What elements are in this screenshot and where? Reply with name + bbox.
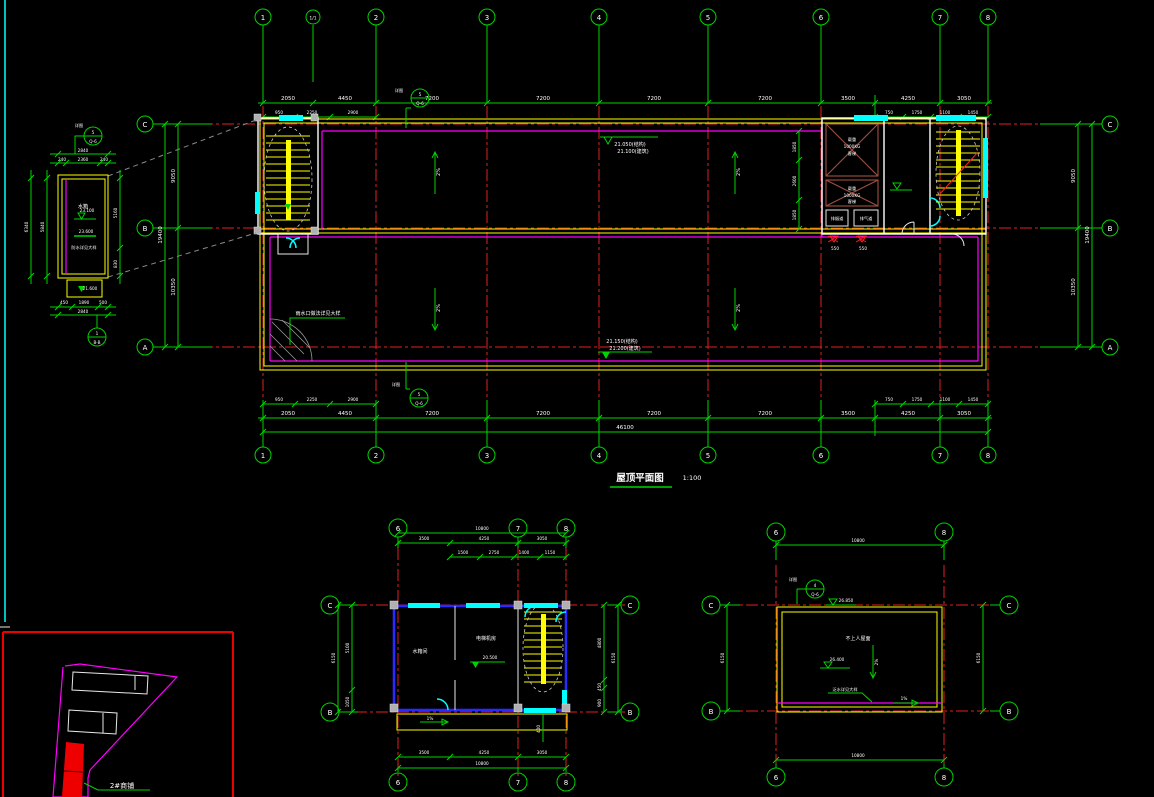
slope-label: 2% — [436, 168, 442, 176]
dim-text: 950 — [275, 110, 283, 115]
grid-bubble-label: C — [709, 602, 714, 610]
key-plan-frame — [3, 632, 233, 797]
dim-text: 830 — [113, 260, 118, 268]
door-swing — [286, 238, 300, 248]
grid-bubble-label: A — [143, 344, 148, 352]
grid-bubbles-bottom: 1 2 3 4 5 6 7 8 — [255, 447, 996, 463]
parapet-outline — [260, 119, 986, 370]
plan-scale: 1:100 — [683, 474, 702, 482]
elevator-x-1 — [826, 124, 878, 176]
elevation-text: 21.150(结构) — [606, 338, 637, 345]
column — [514, 601, 522, 609]
lobby-elevation-marker — [890, 183, 912, 190]
door-swing — [952, 234, 964, 246]
column — [311, 227, 318, 234]
dim-text: 750 — [885, 110, 893, 115]
column — [390, 601, 398, 609]
dim-text: 1850 — [792, 209, 797, 220]
grid-bubble-label: 5 — [706, 452, 710, 460]
grid-axis-vertical-lines — [263, 85, 988, 445]
plan-title: 屋顶平面图 — [616, 473, 664, 484]
dim-text: 9050 — [171, 169, 177, 183]
door-swings — [437, 606, 566, 710]
dim-text: 3050 — [957, 96, 971, 102]
callout-sheet: Q-6 — [811, 592, 819, 597]
elevator-label: 载重 — [848, 136, 856, 143]
dim-text: 2050 — [281, 96, 295, 102]
dim-text: 240 — [100, 157, 108, 162]
callout-sheet: B-B — [93, 340, 100, 345]
callout-label: 详图 — [395, 87, 403, 94]
dim-text: 4250 — [479, 750, 490, 755]
window — [255, 192, 260, 214]
parapet-mid-line — [260, 229, 986, 233]
dim-ticks — [335, 530, 621, 771]
dim-total-text: 46100 — [616, 425, 634, 431]
callout-leader — [797, 589, 806, 604]
dim-text: 1450 — [968, 397, 979, 402]
dim-text: 950 — [275, 397, 283, 402]
dim-text: 2840 — [78, 148, 89, 153]
grid-bubble-label: 3 — [485, 452, 489, 460]
grid-bubble-stems-top — [263, 25, 988, 103]
grid-bubble-label: 5 — [706, 14, 710, 22]
dim-text: 4250 — [901, 96, 915, 102]
dim-text: 1850 — [792, 141, 797, 152]
dim-text: 9050 — [1071, 169, 1077, 183]
grid-bubble-label: 8 — [986, 14, 990, 22]
grid-bubble-label: A — [1108, 344, 1113, 352]
dim-text: 400 — [536, 725, 541, 733]
elevation-text: 21.050(结构) — [614, 141, 645, 148]
window — [279, 115, 303, 121]
elevation-marker — [820, 662, 850, 668]
grid-bubble-label: B — [328, 709, 333, 717]
grid-bubble-label: 7 — [516, 525, 520, 533]
grid-bubble-label: C — [628, 602, 633, 610]
grid-axes — [725, 605, 1000, 711]
callout-number: 5 — [92, 130, 95, 135]
elevator-label: 载重 — [848, 185, 856, 192]
key-plan-label: 2#商铺 — [110, 781, 134, 790]
callout-sheet: Q-6 — [416, 101, 424, 106]
dim-text: 5160 — [113, 207, 118, 218]
column — [311, 114, 318, 121]
dim-text: 7200 — [425, 96, 439, 102]
tank-detail-plan: 21.600 水箱 23.100 23.600 防水详见大样 2840 240 … — [24, 120, 256, 346]
machine-room-plan: 6 7 8 6 7 8 C B C B 10800 3500 4250 3050… — [321, 519, 639, 791]
callout-number: 5 — [419, 92, 422, 97]
slope-label: 2% — [436, 304, 442, 312]
bubble-stems — [720, 541, 1000, 768]
roof-label: 不上人屋面 — [845, 635, 870, 642]
dim-text: 3500 — [841, 411, 855, 417]
awning-slope-arrow — [420, 719, 448, 725]
elevation-text: 23.600 — [79, 229, 94, 234]
current-building-highlight — [62, 742, 84, 797]
slope-label: 1% — [901, 696, 908, 701]
dim-text: 1750 — [912, 110, 923, 115]
dim-text: 1750 — [912, 397, 923, 402]
callout-sheet: Q-6 — [415, 401, 423, 406]
dim-text: 1150 — [545, 550, 556, 555]
window — [466, 603, 500, 608]
dim-text: 4450 — [338, 411, 352, 417]
dim-text: 3050 — [537, 750, 548, 755]
dim-text: 3500 — [419, 750, 430, 755]
dim-text: 2900 — [348, 110, 359, 115]
dim-text: 3500 — [419, 536, 430, 541]
room-label: 电梯机房 — [476, 635, 496, 642]
dim-text: 1400 — [519, 550, 530, 555]
dim-text: 4250 — [479, 536, 490, 541]
dim-text: 1100 — [940, 397, 951, 402]
dim-text: 3500 — [841, 96, 855, 102]
tank-walls-inner — [62, 179, 105, 274]
dim-text: 1100 — [940, 110, 951, 115]
grid-bubble-label: 6 — [396, 779, 401, 787]
grid-bubble-label: 8 — [564, 779, 568, 787]
grid-bubble-label: B — [1108, 225, 1113, 233]
dim-text: 500 — [99, 300, 107, 305]
grid-bubble-label: 8 — [942, 529, 946, 537]
flue-label: 排烟道 — [831, 215, 844, 222]
elevation-text: 21.200(建筑) — [609, 345, 640, 352]
grid-axes — [776, 565, 944, 768]
column — [562, 601, 570, 609]
drain-dim: 550 — [859, 246, 867, 251]
dim-text: 900 — [597, 699, 602, 707]
elevation-text: 26.850 — [839, 598, 854, 603]
bubble-stems — [339, 537, 621, 772]
elevation-text: 21.100(建筑) — [617, 148, 648, 155]
grid-bubble-label: B — [628, 709, 633, 717]
dim-text: 2900 — [348, 397, 359, 402]
dim-text: 2250 — [307, 397, 318, 402]
roof-detail-plan: 6 8 6 8 C B C B 10800 10800 6150 6150 4 … — [702, 523, 1018, 786]
elevation-marker — [74, 213, 96, 219]
grid-bubbles-top: 1 1/1 2 3 4 5 6 7 8 — [255, 9, 996, 25]
callout-number: 5 — [418, 392, 421, 397]
grid-bubble-label: C — [143, 121, 148, 129]
dim-text: 750 — [885, 397, 893, 402]
dim-text: 6150 — [720, 652, 725, 663]
elevator-label: 1000KG — [844, 144, 861, 149]
grid-bubble-label: 1 — [261, 14, 265, 22]
dim-ticks — [724, 542, 986, 763]
elevator-label: 1000KG — [844, 193, 861, 198]
drawing-sheet: 1 1/1 2 3 4 5 6 7 8 1 2 3 4 5 6 7 8 C B … — [0, 0, 1154, 797]
dim-text: 6340 — [24, 221, 29, 232]
dim-text: 7200 — [647, 411, 661, 417]
dim-text: 19400 — [1085, 226, 1091, 244]
dim-text: 240 — [58, 157, 66, 162]
dim-text: 3050 — [957, 411, 971, 417]
dim-text: 6150 — [331, 652, 336, 663]
grid-bubble-label: 8 — [942, 774, 946, 782]
callout-number: 1 — [96, 331, 99, 336]
dim-text: 19400 — [158, 226, 164, 244]
dim-lines — [338, 533, 618, 768]
dim-text: 2750 — [489, 550, 500, 555]
building-outline-2 — [68, 710, 117, 734]
core-inner-walls — [884, 118, 930, 234]
flue-label: 排气道 — [860, 215, 873, 222]
detail-dim-lines — [31, 154, 120, 315]
grid-bubble-label: 1/1 — [309, 16, 316, 22]
slope-label: 2% — [874, 659, 879, 666]
dim-text: 450 — [597, 683, 602, 691]
grid-bubble-label: 1 — [261, 452, 265, 460]
grid-bubble-label: 6 — [396, 525, 401, 533]
grid-bubble-label: B — [709, 708, 714, 716]
grid-bubble-label: 7 — [516, 779, 520, 787]
grid-bubble-label: C — [1108, 121, 1113, 129]
grid-bubble-label: 7 — [938, 452, 942, 460]
dim-text: 6150 — [976, 652, 981, 663]
dim-text: 5100 — [345, 642, 350, 653]
callout-label: 详图 — [75, 122, 83, 129]
grid-bubble-label: 4 — [597, 14, 602, 22]
callout-number: 4 — [814, 583, 817, 588]
elevation-text: 26.400 — [830, 657, 845, 662]
dim-text: 10800 — [851, 538, 865, 543]
elevator-label: 客梯 — [848, 150, 856, 157]
dim-text: 7200 — [647, 96, 661, 102]
grid-bubble-label: B — [143, 225, 148, 233]
window — [936, 115, 976, 121]
dim-text: 7200 — [758, 96, 772, 102]
grid-bubble-label: 6 — [819, 452, 824, 460]
window — [854, 115, 888, 121]
callout-sheet: Q-6 — [89, 139, 97, 144]
key-plan: 2#商铺 — [3, 632, 233, 797]
column — [390, 704, 398, 712]
main-roof-plan: 1 1/1 2 3 4 5 6 7 8 1 2 3 4 5 6 7 8 C B … — [137, 9, 1118, 487]
grid-axes — [398, 548, 566, 778]
dim-text: 4800 — [597, 637, 602, 648]
grid-bubble-label: 4 — [597, 452, 602, 460]
dim-text: 5840 — [40, 221, 45, 232]
grid-bubble-label: 6 — [819, 14, 824, 22]
callout-leader — [406, 108, 411, 128]
dim-text: 1050 — [345, 696, 350, 707]
dim-text: 450 — [60, 300, 68, 305]
slope-label: 2% — [736, 168, 742, 176]
grid-bubble-label: 6 — [774, 529, 779, 537]
grid-bubble-label: 2 — [374, 452, 378, 460]
dim-text: 7200 — [536, 96, 550, 102]
note-text: 泛水详见大样 — [832, 686, 857, 693]
dim-text: 10800 — [475, 761, 489, 766]
grid-bubble-label: C — [1007, 602, 1012, 610]
window — [524, 708, 556, 713]
elevation-text: 23.100 — [80, 208, 95, 213]
drain-dim: 550 — [831, 246, 839, 251]
window — [408, 603, 440, 608]
zoom-leader-lines — [108, 120, 256, 277]
grid-bubble-label: 6 — [774, 774, 779, 782]
elevator-label: 客梯 — [848, 198, 856, 205]
dim-text: 10350 — [1071, 278, 1077, 296]
callout-leader — [85, 315, 97, 328]
dim-text: 10800 — [851, 753, 865, 758]
dim-text: 10350 — [171, 278, 177, 296]
elevation-triangle — [472, 662, 479, 668]
drain-note-leader — [290, 318, 345, 345]
grid-bubble-label: 2 — [374, 14, 378, 22]
dim-text: 1500 — [458, 550, 469, 555]
slope-arrows — [432, 152, 738, 330]
right-core: 载重 1000KG 客梯 载重 1000KG 客梯 排烟道 排气道 550 55… — [792, 115, 988, 251]
elevation-text: 21.600 — [83, 286, 98, 291]
note-leader — [828, 693, 872, 702]
grid-bubble-label: 7 — [938, 14, 942, 22]
grid-bubble-label: 8 — [986, 452, 990, 460]
dim-text: 2600 — [792, 175, 797, 186]
slope-label: 2% — [736, 304, 742, 312]
callout-label: 详图 — [789, 576, 797, 583]
column — [514, 704, 522, 712]
dim-text: 3050 — [537, 536, 548, 541]
grid-bubble-label: 3 — [485, 14, 489, 22]
note-text: 防水详见大样 — [71, 244, 96, 251]
drain-note-text: 雨水口做法详见大样 — [295, 310, 340, 317]
callout-label: 详图 — [392, 381, 400, 388]
dim-text: 7200 — [758, 411, 772, 417]
exterior-walls — [394, 606, 566, 710]
room-label: 水箱间 — [412, 648, 427, 655]
elevation-text: 20.500 — [483, 655, 498, 660]
window — [983, 138, 988, 198]
dim-text: 4250 — [901, 411, 915, 417]
dim-text: 1450 — [968, 110, 979, 115]
dim-text: 2840 — [78, 309, 89, 314]
grid-bubble-label: B — [1007, 708, 1012, 716]
dim-text: 4450 — [338, 96, 352, 102]
dim-text: 7200 — [425, 411, 439, 417]
window — [524, 603, 558, 608]
dim-lines — [727, 545, 983, 760]
elevation-triangle — [602, 352, 610, 359]
grid-bubble-label: C — [328, 602, 333, 610]
slope-label: 1% — [427, 716, 434, 721]
main-annotations: 2% 2% 2% 2% 21.050(结构) 21.100(建筑) 21.150… — [270, 87, 742, 407]
dim-text: 1890 — [79, 300, 90, 305]
column — [562, 704, 570, 712]
dim-text: 6150 — [611, 652, 616, 663]
dim-text: 2050 — [281, 411, 295, 417]
door-swing — [902, 222, 914, 234]
stair-rail — [541, 614, 546, 684]
dim-text: 7200 — [536, 411, 550, 417]
building-outline-1 — [72, 672, 148, 694]
dim-text: 10800 — [475, 526, 489, 531]
parapet-outer — [777, 607, 942, 712]
dim-text: 2360 — [78, 157, 89, 162]
cad-drawing-canvas: 1 1/1 2 3 4 5 6 7 8 1 2 3 4 5 6 7 8 C B … — [0, 0, 1154, 797]
